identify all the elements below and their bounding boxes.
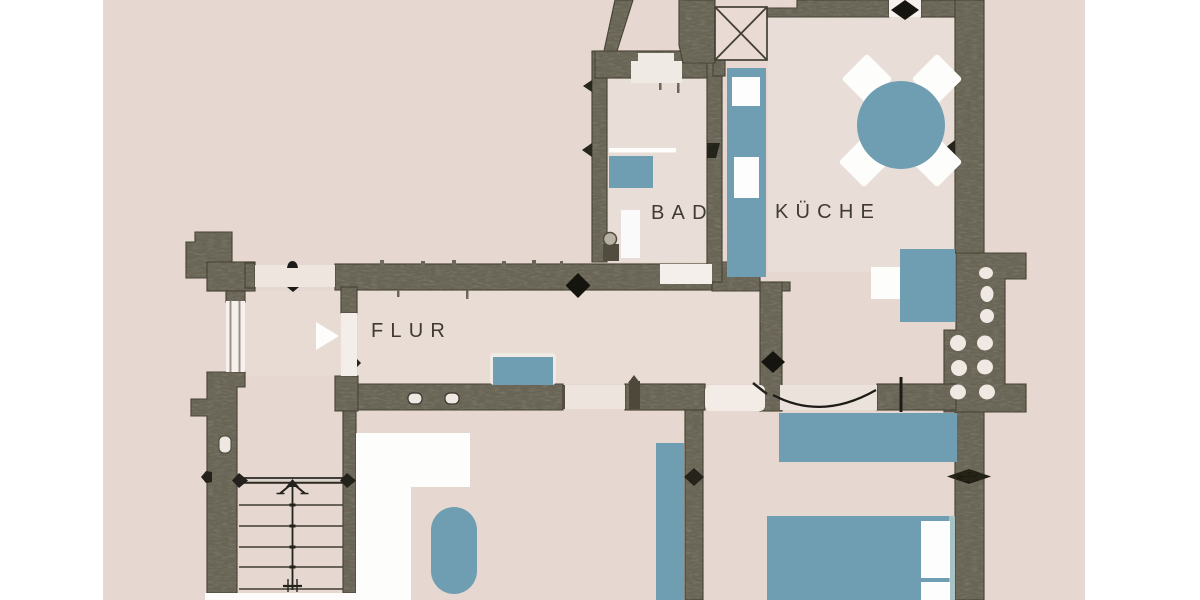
svg-text:BAD: BAD <box>651 202 714 224</box>
svg-text:FLUR: FLUR <box>371 320 452 342</box>
svg-text:KÜCHE: KÜCHE <box>775 201 881 223</box>
